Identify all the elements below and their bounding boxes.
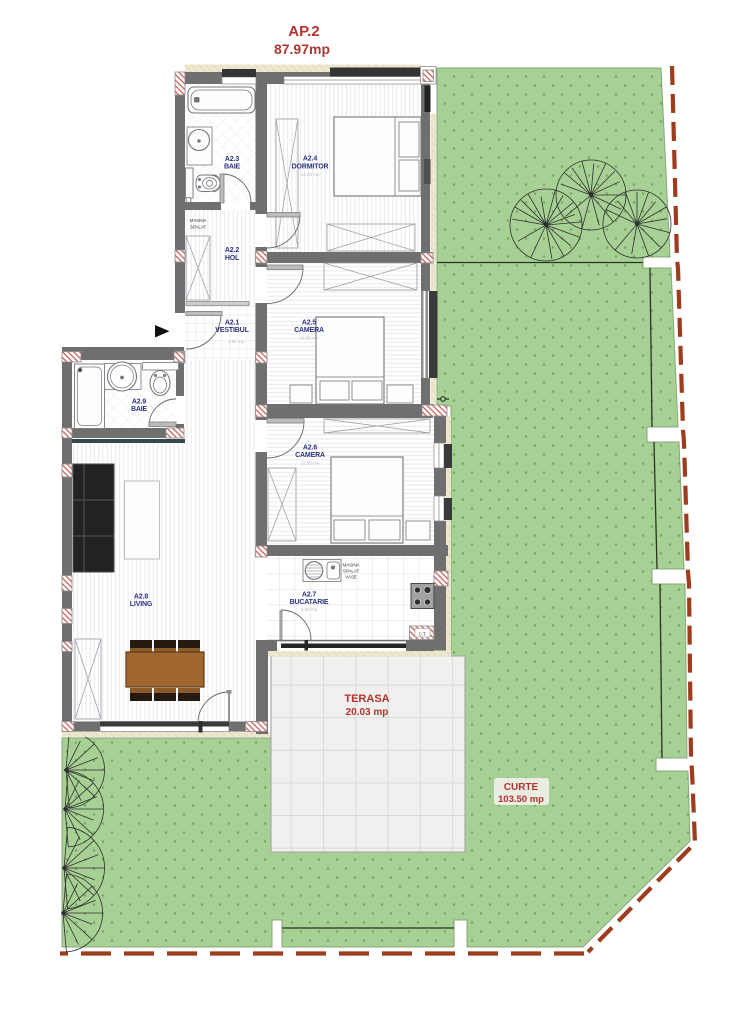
- svg-text:VESTIBUL: VESTIBUL: [215, 327, 249, 334]
- svg-text:87.97mp: 87.97mp: [274, 41, 330, 57]
- svg-text:A2.9: A2.9: [132, 399, 146, 406]
- svg-text:14.28 mp: 14.28 mp: [301, 172, 320, 177]
- svg-text:VASE: VASE: [345, 575, 357, 580]
- svg-text:TERASA: TERASA: [344, 693, 389, 705]
- svg-text:CAMERA: CAMERA: [294, 327, 324, 334]
- svg-text:SPALAT: SPALAT: [343, 569, 360, 574]
- svg-text:BAIE: BAIE: [224, 164, 241, 171]
- svg-text:A2.2: A2.2: [225, 247, 239, 254]
- svg-text:MASINA: MASINA: [189, 218, 207, 223]
- svg-text:A2.1: A2.1: [225, 320, 239, 327]
- svg-text:A2.5: A2.5: [302, 320, 316, 327]
- svg-text:LIVING: LIVING: [130, 601, 153, 608]
- svg-text:A2.7: A2.7: [302, 592, 316, 599]
- svg-text:BAIE: BAIE: [131, 406, 148, 413]
- svg-text:CURTE: CURTE: [504, 782, 539, 793]
- svg-text:20.03 mp: 20.03 mp: [346, 707, 389, 718]
- svg-text:BUCATARIE: BUCATARIE: [290, 599, 329, 606]
- svg-text:SPALAT: SPALAT: [190, 225, 207, 230]
- svg-text:A2.8: A2.8: [134, 594, 148, 601]
- svg-text:8.50 mp: 8.50 mp: [301, 607, 318, 612]
- svg-text:HOL: HOL: [225, 255, 240, 262]
- svg-text:3.85 mp: 3.85 mp: [228, 339, 245, 344]
- svg-text:AP.2: AP.2: [288, 23, 319, 40]
- svg-text:MASINA: MASINA: [342, 563, 360, 568]
- svg-text:A2.6: A2.6: [303, 445, 317, 452]
- svg-text:12.55 mp: 12.55 mp: [301, 461, 320, 466]
- svg-text:A2.3: A2.3: [225, 156, 239, 163]
- svg-text:CAMERA: CAMERA: [295, 452, 325, 459]
- svg-text:DORMITOR: DORMITOR: [292, 163, 329, 170]
- svg-text:103.50 mp: 103.50 mp: [498, 794, 544, 805]
- svg-text:12.05 mp: 12.05 mp: [300, 336, 319, 341]
- svg-text:C.T.: C.T.: [419, 632, 427, 637]
- svg-text:A2.4: A2.4: [303, 156, 317, 163]
